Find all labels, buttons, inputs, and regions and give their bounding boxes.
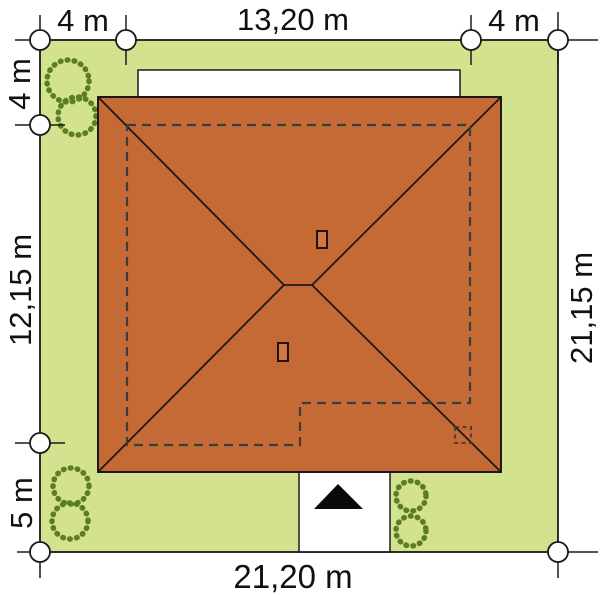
dim-bottom-width: 21,20 m: [233, 558, 352, 595]
survey-marker-icon: [548, 542, 568, 562]
survey-marker-icon: [30, 115, 50, 135]
survey-marker-icon: [116, 30, 136, 50]
survey-marker-icon: [30, 433, 50, 453]
dim-left-offset-top: 4 m: [2, 58, 37, 110]
dim-top-offset-left: 4 m: [57, 3, 109, 38]
dim-top-width: 13,20 m: [237, 2, 349, 37]
dim-right-height: 21,15 m: [564, 252, 599, 364]
driveway: [299, 472, 390, 552]
dim-left-offset-bottom: 5 m: [4, 477, 39, 529]
dim-left-height: 12,15 m: [3, 234, 38, 346]
terrace: [138, 70, 460, 99]
survey-marker-icon: [30, 542, 50, 562]
roof: [98, 97, 501, 472]
chimney: [317, 231, 327, 248]
survey-marker-icon: [461, 30, 481, 50]
chimney: [278, 343, 288, 361]
site-plan-canvas: 4 m 13,20 m 4 m 4 m 12,15 m 5 m 21,15 m …: [0, 0, 600, 595]
survey-marker-icon: [548, 30, 568, 50]
site-plan-drawing: 4 m 13,20 m 4 m 4 m 12,15 m 5 m 21,15 m …: [0, 0, 600, 595]
dim-top-offset-right: 4 m: [488, 3, 540, 38]
survey-marker-icon: [30, 30, 50, 50]
